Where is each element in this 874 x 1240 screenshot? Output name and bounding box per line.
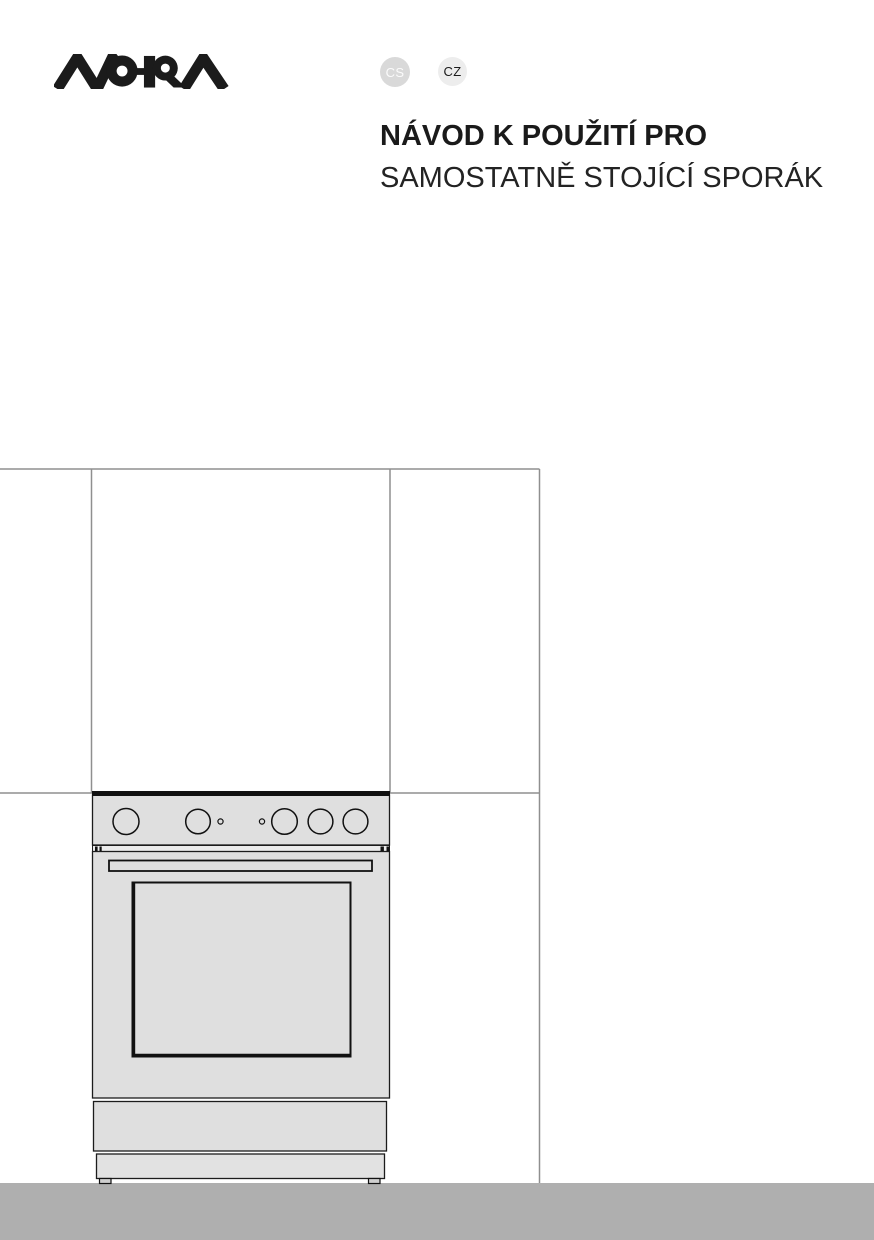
knob-2 — [186, 809, 211, 834]
indicator-light-1 — [218, 819, 223, 824]
manual-cover-page: CS CZ NÁVOD K POUŽITÍ PRO SAMOSTATNĚ STO… — [0, 0, 874, 1240]
plinth — [97, 1154, 385, 1179]
storage-drawer — [94, 1102, 387, 1152]
knob-1 — [113, 809, 139, 835]
knob-4 — [308, 809, 333, 834]
right-foot — [369, 1179, 381, 1184]
freestanding-cooker — [92, 791, 390, 1184]
oven-door-handle — [109, 861, 372, 872]
knob-3 — [272, 809, 298, 835]
cooktop-edge — [92, 791, 390, 796]
indicator-light-2 — [259, 819, 264, 824]
oven-door-window — [133, 883, 351, 1057]
floor — [0, 1183, 874, 1240]
knob-5 — [343, 809, 368, 834]
left-foot — [100, 1179, 112, 1184]
cooker-illustration — [0, 0, 874, 1240]
hinge-strip — [93, 846, 390, 852]
